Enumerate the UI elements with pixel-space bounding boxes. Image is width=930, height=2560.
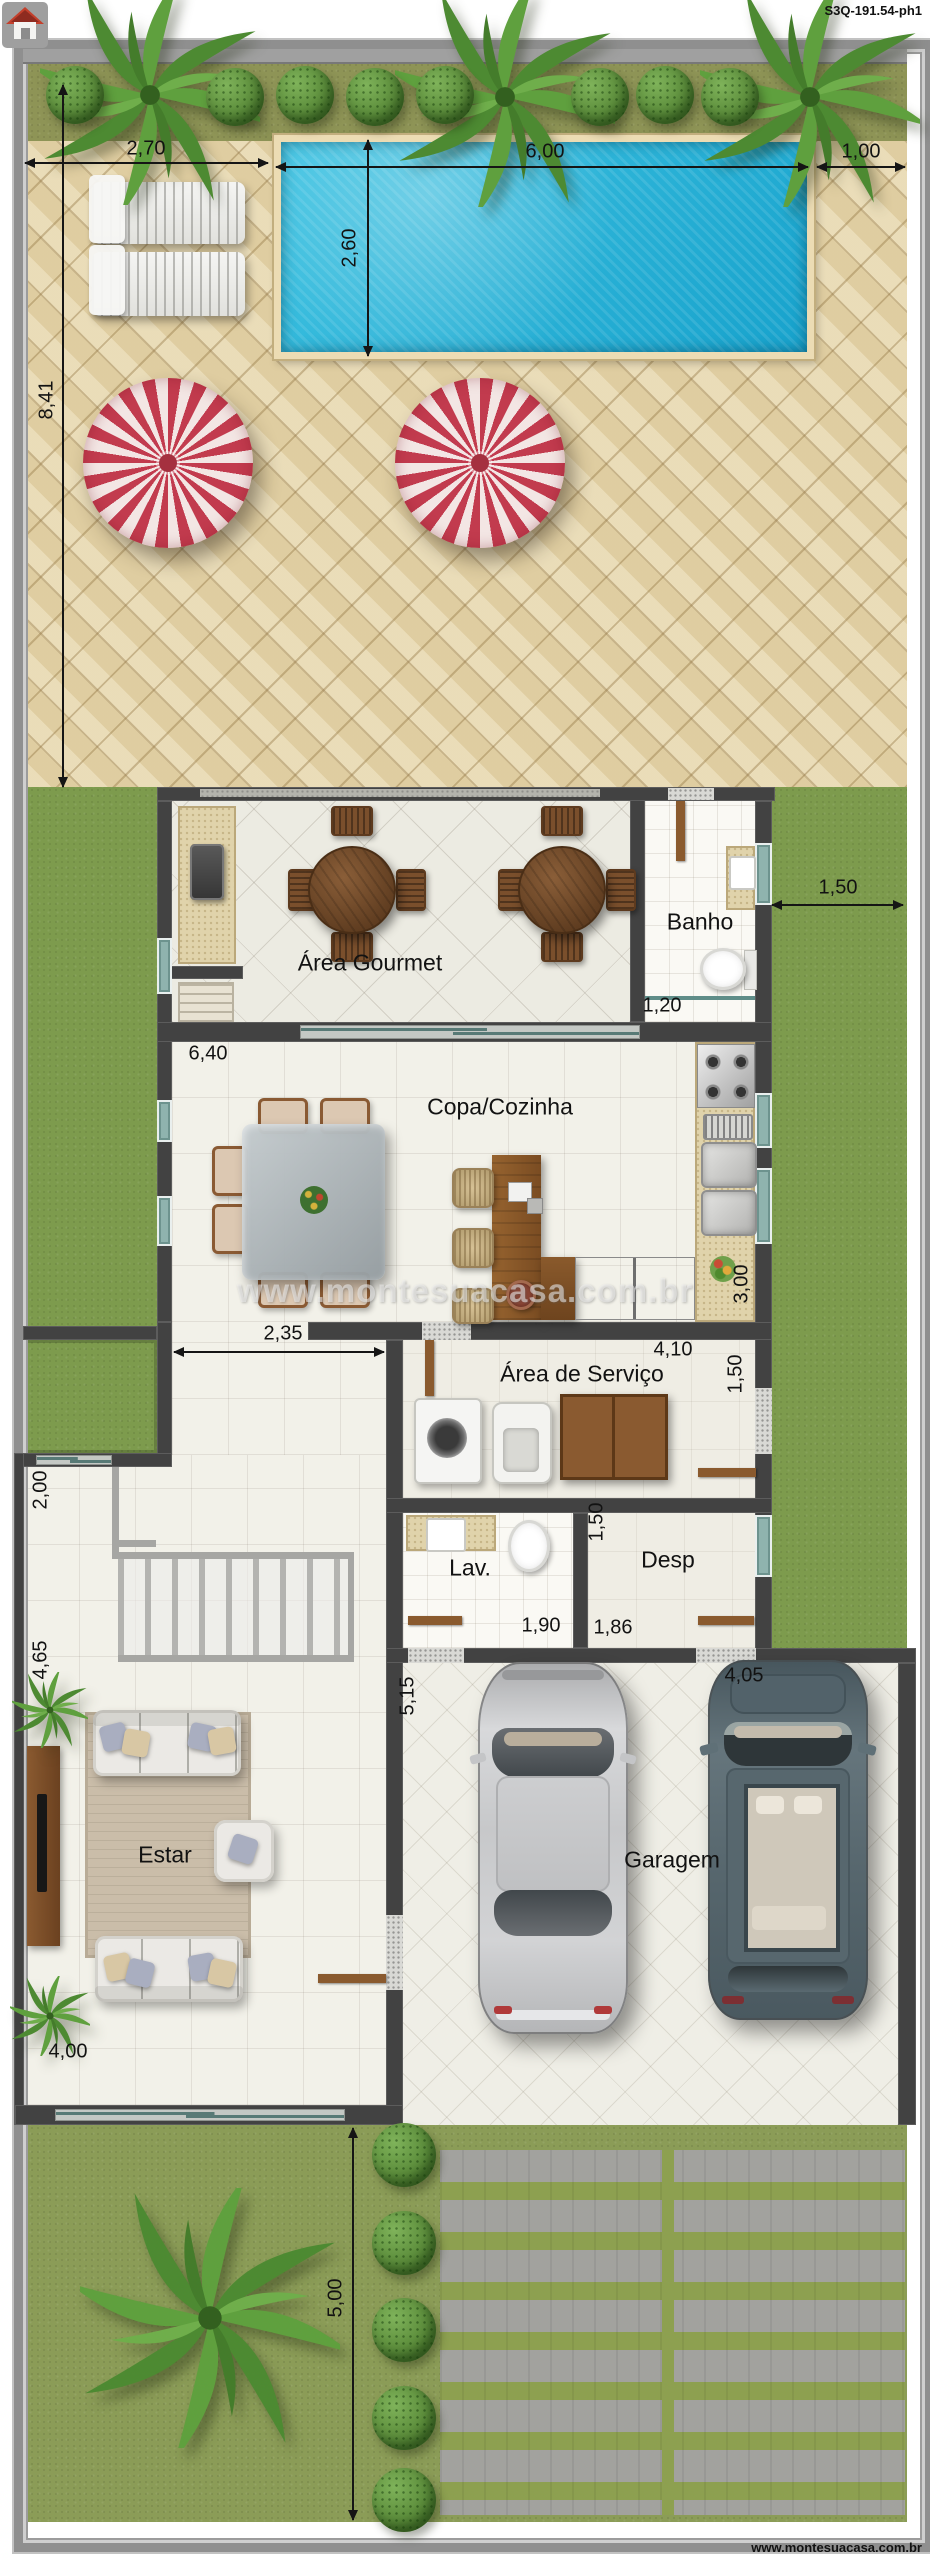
estar-garagem-door-opening (386, 1915, 403, 1990)
despensa-door-leaf (698, 1616, 754, 1625)
driveway-grass-gap (662, 2150, 674, 2515)
gourmet-chair (541, 932, 583, 962)
gourmet-cabinet (178, 982, 234, 1022)
room-label-lavabo: Lav. (449, 1555, 491, 1582)
window-despensa-right (755, 1515, 772, 1577)
washing-machine (414, 1398, 482, 1484)
window-banho-right (755, 843, 772, 905)
gourmet-grill (190, 844, 224, 900)
dim-label: 4,05 (725, 1665, 764, 1688)
armchair-pillow (227, 1833, 260, 1866)
window-cozinha-left-2 (157, 1196, 172, 1246)
room-label-despensa: Desp (641, 1547, 695, 1574)
cooktop (697, 1044, 755, 1108)
suv-seat-front-right (794, 1796, 822, 1814)
room-label-garagem: Garagem (624, 1847, 720, 1874)
washer-door (427, 1418, 467, 1458)
dim-label: 5,15 (397, 1677, 420, 1716)
sedan-roof (496, 1776, 610, 1892)
bush (701, 68, 759, 126)
dim-label: 4,65 (30, 1641, 53, 1680)
bush (372, 2468, 436, 2532)
dim-line-pool-width (367, 140, 369, 356)
dim-label: 6,40 (189, 1043, 228, 1066)
sofa-pillow (121, 1728, 151, 1758)
suv-rear-bench (752, 1906, 826, 1930)
gourmet-chair (541, 806, 583, 836)
lavabo-door-threshold (408, 1648, 464, 1663)
window-cozinha-left-1 (157, 1100, 172, 1142)
room-label-banho: Banho (667, 909, 734, 936)
lavabo-door-leaf (408, 1616, 462, 1625)
floor-plan-page: S3Q-191.54-ph1 www.montesuacasa.com.br (0, 0, 930, 2560)
sofa-pillow (124, 1957, 156, 1989)
bush (372, 2298, 436, 2362)
suv-taillight-left (722, 1996, 744, 2004)
patio-umbrella-right (395, 378, 565, 548)
staircase (118, 1552, 354, 1662)
dim-line-hall-width (174, 1351, 384, 1353)
dim-label: 3,00 (731, 1265, 754, 1304)
wall-garagem-right (898, 1663, 916, 2125)
dim-label: 4,00 (49, 2041, 88, 2064)
dim-label: 1,50 (586, 1503, 609, 1542)
banho-door-threshold (668, 788, 714, 800)
wall-gourmet-banho (630, 800, 645, 1022)
sofa-pillow (207, 1726, 237, 1756)
gourmet-table-2 (518, 846, 606, 934)
driveway-pavers (440, 2150, 905, 2515)
right-side-yard (772, 787, 907, 1663)
wall-mid-divider (386, 1340, 403, 2125)
dim-label: 1,50 (819, 877, 858, 900)
gourmet-chair (331, 806, 373, 836)
sedan-rear-window (494, 1890, 612, 1936)
armchair (214, 1820, 274, 1882)
servico-door-leaf (425, 1340, 434, 1396)
suv-dashboard (734, 1726, 842, 1738)
lavabo-toilet (508, 1520, 550, 1572)
gourmet-table-1 (308, 846, 396, 934)
bush (571, 68, 629, 126)
island-small-appliance (527, 1198, 543, 1214)
wall-servico-lavabo (386, 1498, 772, 1513)
sedan-taillight-left (494, 2006, 512, 2014)
banho-door-leaf (676, 801, 685, 861)
dim-label: 1,20 (643, 995, 682, 1018)
suv-taillight-right (832, 1996, 854, 2004)
website-url: www.montesuacasa.com.br (751, 2540, 922, 2555)
window-cozinha-right-1 (755, 1093, 772, 1148)
dim-line-pool-length (276, 166, 808, 168)
gourmet-open-edge (200, 789, 600, 797)
bush (206, 68, 264, 126)
room-label-estar: Estar (138, 1842, 192, 1869)
dim-label: 1,86 (594, 1617, 633, 1640)
banho-sink (729, 856, 756, 890)
dim-label: 5,00 (325, 2279, 348, 2318)
estar-front-sliding-door (55, 2109, 345, 2121)
lavabo-sink (426, 1518, 466, 1552)
television (37, 1794, 47, 1892)
dim-label: 2,60 (339, 229, 362, 268)
bush (372, 2386, 436, 2450)
entry-garden (23, 1340, 157, 1453)
sedan-rear-bumper (496, 2010, 610, 2020)
wall-garden-top (23, 1326, 157, 1340)
gourmet-chair (606, 869, 636, 911)
bush (372, 2123, 436, 2187)
sofa-bottom (95, 1936, 243, 2002)
dim-label: 1,50 (725, 1355, 748, 1394)
sofa-pillow (207, 1958, 238, 1989)
dim-label: 4,10 (654, 1339, 693, 1362)
dim-label: 6,00 (526, 141, 565, 164)
servico-side-door-opening (755, 1388, 772, 1454)
suv-seat-front-left (756, 1796, 784, 1814)
bar-stool (452, 1168, 494, 1208)
dim-label: 2,00 (30, 1471, 53, 1510)
laundry-tub (492, 1402, 552, 1484)
bush (346, 68, 404, 126)
servico-cabinet (560, 1394, 668, 1480)
bar-stool (452, 1228, 494, 1268)
bush (636, 66, 694, 124)
gourmet-chair (396, 869, 426, 911)
bush (276, 66, 334, 124)
dim-label: 1,00 (842, 141, 881, 164)
sedan-taillight-right (594, 2006, 612, 2014)
dim-label: 2,35 (264, 1323, 303, 1346)
window-gourmet-left (157, 938, 172, 994)
laundry-tub-basin (503, 1428, 539, 1472)
stair-rail-turn (112, 1540, 156, 1547)
bush (46, 66, 104, 124)
logo-house-icon (2, 2, 48, 48)
bush (372, 2211, 436, 2275)
room-label-copa-cozinha: Copa/Cozinha (427, 1094, 573, 1121)
suv-rear-window (728, 1966, 848, 1992)
patio-umbrella-left (83, 378, 253, 548)
table-centerpiece-flowers (300, 1186, 328, 1214)
sedan-grille (502, 1670, 604, 1680)
car-sedan (478, 1662, 628, 2034)
servico-side-door-leaf (698, 1468, 756, 1477)
suv-open-roof-interior (744, 1784, 840, 1952)
watermark: www.montesuacasa.com.br (237, 1272, 693, 1310)
wall-house-left-lower (157, 1322, 172, 1455)
sedan-dashboard (504, 1732, 602, 1746)
dim-label: 8,41 (36, 381, 59, 420)
car-suv (708, 1660, 868, 2020)
dim-line-patio-depth (62, 85, 64, 787)
gourmet-sliding-glass-door (300, 1025, 640, 1039)
estar-garagem-door-leaf (318, 1974, 386, 1983)
dim-label: 2,70 (127, 138, 166, 161)
banho-toilet (700, 948, 746, 990)
window-cozinha-right-2 (755, 1168, 772, 1244)
servico-door-threshold (422, 1322, 471, 1340)
sofa-top (93, 1710, 241, 1776)
dim-label: 1,90 (522, 1615, 561, 1638)
dish-rack (703, 1114, 753, 1140)
kitchen-sink-basin-1 (701, 1142, 757, 1188)
front-yard-palm-tree (80, 2188, 340, 2448)
sun-lounger-2 (92, 252, 245, 316)
plan-code: S3Q-191.54-ph1 (824, 3, 922, 18)
room-label-area-servico: Área de Serviço (500, 1361, 664, 1388)
dim-line-right-setback (772, 904, 903, 906)
corner-plant (12, 1672, 88, 1748)
kitchen-sink-basin-2 (701, 1190, 757, 1236)
room-label-area-gourmet: Área Gourmet (298, 950, 442, 977)
dim-line-deck-right (817, 166, 905, 168)
dim-line-front-setback (352, 2128, 354, 2520)
bush (416, 66, 474, 124)
wall-cozinha-servico (308, 1322, 772, 1340)
estar-garden-sliding-door (36, 1455, 112, 1465)
